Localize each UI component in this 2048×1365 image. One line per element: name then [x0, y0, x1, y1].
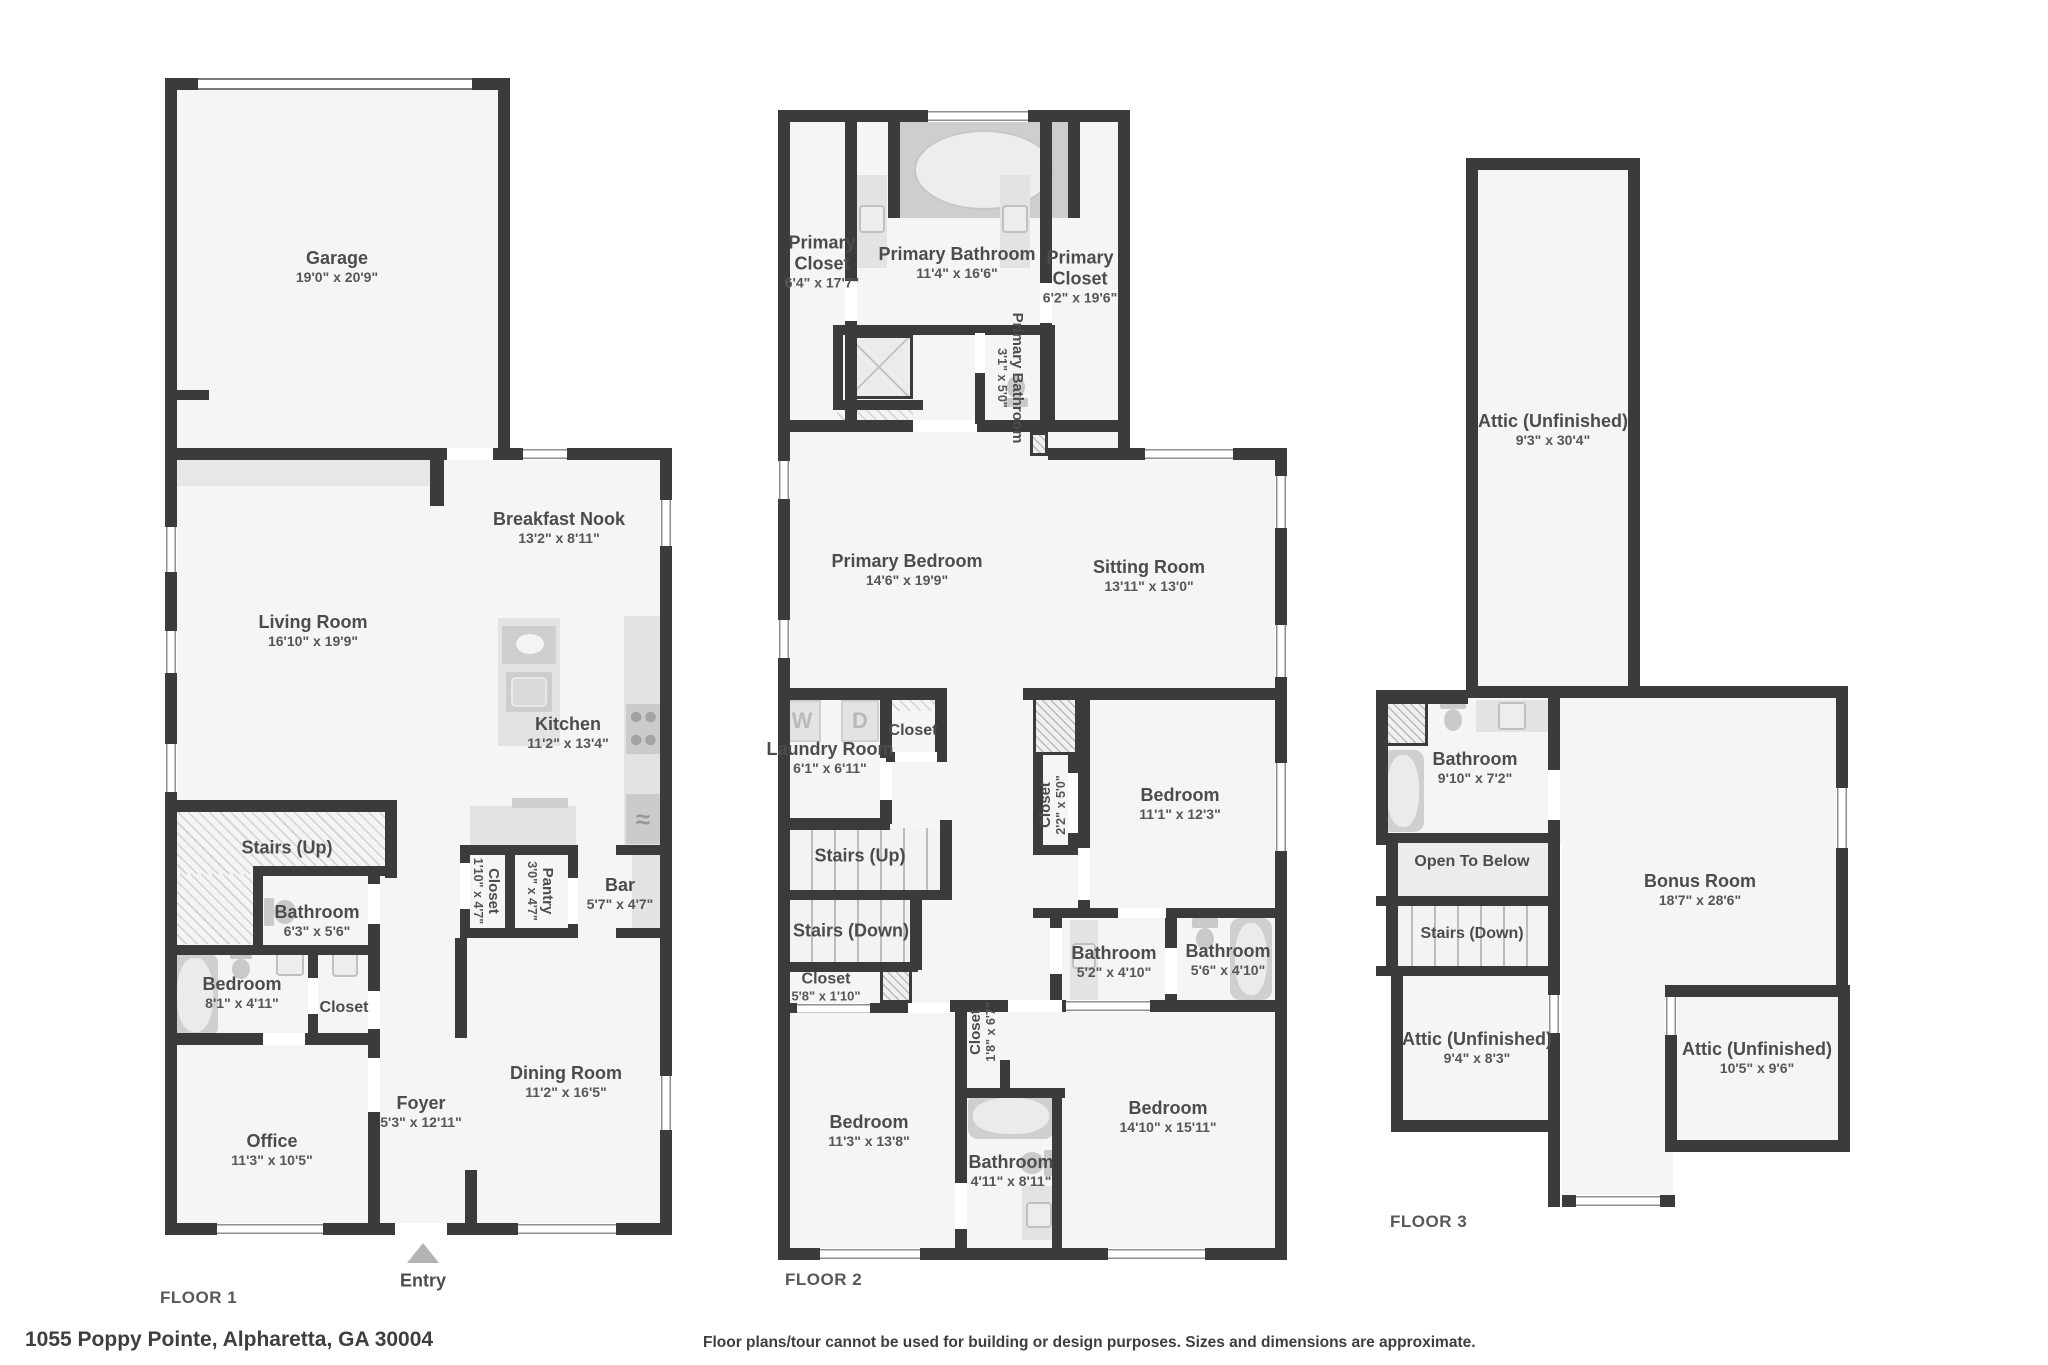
toilet-icon: [1192, 918, 1218, 928]
label-stairs-up: Stairs (Up): [814, 846, 905, 867]
room-label-bedroom: Bedroom 8'1" x 4'11": [202, 974, 281, 1012]
bar-back-counter: [470, 806, 576, 846]
room-name: Bedroom: [828, 1112, 909, 1133]
window: [1576, 1195, 1660, 1207]
room-name: Closet: [320, 999, 369, 1017]
wall-segment: [460, 928, 578, 938]
room-label-kitchen: Kitchen 11'2" x 13'4": [527, 714, 608, 752]
door-opening: [447, 448, 493, 460]
room-name: Bedroom: [1119, 1098, 1216, 1119]
floor2-caption: FLOOR 2: [785, 1270, 862, 1290]
room-dims: 9'10" x 7'2": [1433, 770, 1518, 787]
ti: [1387, 755, 1419, 827]
label-stairs-down-f3: Stairs (Down): [1420, 925, 1523, 943]
wall-segment: [165, 448, 672, 460]
room-dims: 1'10" x 4'7": [470, 858, 485, 924]
window: [165, 744, 177, 792]
wall-segment: [465, 1170, 477, 1235]
room-name: Sitting Room: [1093, 557, 1205, 578]
room-label-bathroom: Bathroom 6'3" x 5'6": [275, 902, 360, 940]
room-name: Stairs (Up): [814, 846, 905, 867]
garage-door: [198, 78, 472, 90]
room-name: Kitchen: [527, 714, 608, 735]
wall-segment: [1838, 985, 1850, 1152]
door-opening: [308, 978, 318, 1014]
room-name: Stairs (Down): [793, 921, 909, 942]
chase-hatch: [1030, 432, 1048, 456]
room-name: Laundry Room: [766, 739, 893, 760]
room-name: Bedroom: [202, 974, 281, 995]
room-label-primary-bathroom: Primary Bathroom 11'4" x 16'6": [878, 244, 1035, 282]
window: [1145, 448, 1233, 460]
room-dims: 10'5" x 9'6": [1682, 1060, 1832, 1077]
room-dims: 5'3" x 12'11": [380, 1114, 461, 1131]
door-opening: [975, 333, 985, 373]
wall-segment: [778, 688, 943, 700]
wall-segment: [1033, 845, 1078, 855]
wall-segment: [1068, 122, 1080, 218]
window: [1066, 1000, 1150, 1012]
room-dims: 5'7" x 4'7": [587, 896, 654, 913]
stairs-up-hatch: [177, 874, 253, 944]
room-dims: 11'2" x 16'5": [510, 1084, 622, 1101]
bathtub-icon: [1382, 750, 1424, 832]
wall-segment: [253, 866, 263, 955]
room-label-closet: Closet: [889, 722, 938, 740]
window: [778, 461, 790, 499]
room-dims: 14'10" x 15'11": [1119, 1119, 1216, 1136]
room-name: Stairs (Up): [241, 838, 332, 859]
door-opening: [460, 863, 470, 909]
room-name: Closet: [791, 971, 860, 989]
room-name: Primary Closet: [1020, 248, 1140, 290]
window: [1275, 476, 1287, 528]
room-name: Bonus Room: [1644, 871, 1756, 892]
wall-segment: [888, 122, 900, 218]
disclaimer-text: Floor plans/tour cannot be used for buil…: [703, 1334, 1476, 1352]
wall-segment: [498, 78, 510, 448]
floor1-caption: FLOOR 1: [160, 1288, 237, 1308]
room-dims: 6'3" x 5'6": [275, 923, 360, 940]
window: [1275, 625, 1287, 677]
door-opening: [955, 1183, 967, 1229]
room-label-bathroom-52: Bathroom 5'2" x 4'10": [1072, 943, 1157, 981]
stove-icon: [626, 704, 660, 754]
room-name: Garage: [296, 248, 378, 269]
window: [660, 1076, 672, 1130]
room-label-office: Office 11'3" x 10'5": [231, 1131, 312, 1169]
window: [1108, 1248, 1205, 1260]
wall-segment: [1376, 690, 1388, 845]
wall-segment: [1548, 690, 1560, 1207]
floor-plan-sheet: ≈ Garage: [0, 0, 2048, 1365]
room-dims: 3'0" x 4'7": [524, 861, 539, 921]
entry-text: Entry: [400, 1271, 446, 1292]
room-label-bedroom-113: Bedroom 11'3" x 13'8": [828, 1112, 909, 1150]
window: [820, 1248, 920, 1260]
room-name: Foyer: [380, 1093, 461, 1114]
room-name: Bathroom: [275, 902, 360, 923]
wall-segment: [1640, 686, 1848, 698]
ti: [973, 1098, 1049, 1134]
room-name: Closet: [485, 858, 502, 924]
entry-arrow-icon: [407, 1243, 439, 1263]
room-name: Living Room: [259, 612, 368, 633]
room-label-attic-left: Attic (Unfinished) 9'4" x 8'3": [1402, 1029, 1552, 1067]
room-name: Primary Closet: [767, 233, 877, 275]
room-dims: 5'8" x 1'10": [791, 989, 860, 1004]
wall-segment: [778, 432, 790, 1260]
wall-segment: [1386, 833, 1398, 976]
room-label-attic-right: Attic (Unfinished) 10'5" x 9'6": [1682, 1039, 1832, 1077]
room-name: Primary Bathroom: [878, 244, 1035, 265]
room-label-laundry: Laundry Room 6'1" x 6'11": [766, 739, 893, 777]
wall-segment: [1275, 448, 1287, 1260]
wall-segment: [833, 325, 843, 410]
room-label-bar: Bar 5'7" x 4'7": [587, 875, 654, 913]
room-label-closet-vertical: Closet 1'10" x 4'7": [470, 858, 502, 924]
room-name: Open To Below: [1414, 853, 1529, 871]
room-dims: 13'11" x 13'0": [1093, 578, 1205, 595]
door-opening: [1078, 848, 1090, 900]
room-name: Bathroom: [1433, 749, 1518, 770]
window: [1836, 788, 1848, 848]
room-name: Bar: [587, 875, 654, 896]
dryer-icon: D: [841, 700, 879, 742]
chase-hatch: [1033, 693, 1078, 755]
room-label-bedroom-1410: Bedroom 14'10" x 15'11": [1119, 1098, 1216, 1136]
room-dims: 5'2" x 4'10": [1072, 964, 1157, 981]
room-label-closet-18: Closet 1'8" x 6'7": [967, 1002, 999, 1062]
wall-segment: [1665, 1140, 1850, 1152]
wall-segment: [1000, 1060, 1010, 1090]
window: [660, 500, 672, 546]
bar-appliance: [512, 798, 568, 808]
cover: [1130, 420, 1287, 448]
room-dims: 16'10" x 19'9": [259, 633, 368, 650]
wall-segment: [165, 800, 397, 812]
room-label-garage: Garage 19'0" x 20'9": [296, 248, 378, 286]
room-label-breakfast-nook: Breakfast Nook 13'2" x 8'11": [493, 509, 625, 547]
sink-icon: [859, 205, 885, 233]
property-address: 1055 Poppy Pointe, Alpharetta, GA 30004: [25, 1328, 433, 1352]
wall-segment: [940, 820, 952, 900]
window: [1665, 997, 1677, 1035]
room-dims: 14'6" x 19'9": [831, 572, 982, 589]
room-name: Breakfast Nook: [493, 509, 625, 530]
room-name: Closet: [1037, 775, 1054, 835]
room-label-primary-closet-right: Primary Closet 6'2" x 19'6": [1020, 248, 1140, 307]
wall-segment: [1376, 833, 1558, 843]
room-dims: 6'1" x 6'11": [766, 760, 893, 777]
wall-segment: [833, 325, 978, 335]
room-name: Closet: [967, 1002, 984, 1062]
door-opening: [368, 884, 380, 924]
floor3-caption: FLOOR 3: [1390, 1212, 1467, 1232]
entry-label: Entry: [400, 1271, 446, 1292]
door-opening: [895, 752, 937, 762]
label-stairs-down: Stairs (Down): [793, 921, 909, 942]
room-label-foyer: Foyer 5'3" x 12'11": [380, 1093, 461, 1131]
wall-segment: [165, 390, 209, 400]
chase-hatch: [880, 968, 912, 1003]
wall-segment: [1466, 158, 1640, 170]
bonus-room-area: [1562, 698, 1848, 998]
room-label-sitting-room: Sitting Room 13'11" x 13'0": [1093, 557, 1205, 595]
room-dims: 11'4" x 16'6": [878, 265, 1035, 282]
window: [778, 620, 790, 658]
wall-segment: [1376, 896, 1558, 906]
room-label-bonus-room: Bonus Room 18'7" x 28'6": [1644, 871, 1756, 909]
room-label-primary-bedroom: Primary Bedroom 14'6" x 19'9": [831, 551, 982, 589]
door-opening: [1068, 773, 1078, 833]
room-dims: 5'6" x 4'10": [1186, 962, 1271, 979]
window: [165, 527, 177, 572]
room-label-bedroom-111: Bedroom 11'1" x 12'3": [1139, 785, 1220, 823]
room-dims: 18'7" x 28'6": [1644, 892, 1756, 909]
room-name: Attic (Unfinished): [1402, 1029, 1552, 1050]
room-label-pantry: Pantry 3'0" x 4'7": [524, 861, 556, 921]
room-name: Bathroom: [1072, 943, 1157, 964]
room-dims: 11'1" x 12'3": [1139, 806, 1220, 823]
wall-segment: [833, 400, 923, 410]
wall-segment: [385, 800, 397, 878]
room-dims: 9'4" x 8'3": [1402, 1050, 1552, 1067]
sink-icon: [1026, 1202, 1052, 1228]
room-name: Pantry: [539, 861, 556, 921]
room-dims: 4'11" x 8'11": [969, 1173, 1054, 1190]
room-name: Bathroom: [969, 1152, 1054, 1173]
wall-segment: [778, 818, 890, 830]
window: [518, 1223, 616, 1235]
door-opening: [1008, 1000, 1062, 1012]
room-name: Primary Bathroom: [1009, 313, 1026, 444]
window: [1275, 763, 1287, 851]
room-name: Bedroom: [1139, 785, 1220, 806]
wall-segment: [1052, 1088, 1062, 1260]
room-dims: 11'3" x 13'8": [828, 1133, 909, 1150]
door-opening: [913, 420, 977, 432]
room-name: Attic (Unfinished): [1682, 1039, 1832, 1060]
wall-segment: [910, 900, 922, 970]
wall-segment: [253, 866, 385, 876]
window: [217, 1223, 323, 1235]
room-label-primary-closet-left: Primary Closet 6'4" x 17'7": [767, 233, 877, 292]
door-opening: [1165, 948, 1177, 994]
wall-segment: [965, 1088, 1065, 1098]
room-dims: 11'2" x 13'4": [527, 735, 608, 752]
door-opening: [263, 1033, 305, 1045]
door-opening: [568, 878, 578, 924]
bathtub-icon: [914, 130, 1054, 210]
dishwasher-door: [511, 677, 547, 707]
room-label-bathroom-56: Bathroom 5'6" x 4'10": [1186, 941, 1271, 979]
room-label-bathroom-411: Bathroom 4'11" x 8'11": [969, 1152, 1054, 1190]
wall-segment: [165, 945, 378, 955]
bonus-room-stub: [1562, 995, 1673, 1207]
room-name: Attic (Unfinished): [1478, 411, 1628, 432]
door-opening: [1118, 908, 1166, 918]
room-name: Dining Room: [510, 1063, 622, 1084]
wall-segment: [455, 938, 467, 1038]
wall-segment: [165, 78, 177, 460]
wall-segment: [1466, 158, 1478, 698]
window: [797, 1003, 870, 1013]
room-dims: 3'1" x 5'0": [994, 313, 1009, 444]
window: [928, 110, 1028, 122]
wall-segment: [1045, 325, 1055, 424]
wall-segment: [505, 855, 515, 938]
wall-segment: [1628, 158, 1640, 698]
refrigerator-icon: ≈: [626, 794, 660, 844]
room-dims: 11'3" x 10'5": [231, 1152, 312, 1169]
label-open-to-below: Open To Below: [1414, 853, 1529, 871]
room-dims: 9'3" x 30'4": [1478, 432, 1628, 449]
soffit: [177, 460, 430, 486]
room-label-attic-top: Attic (Unfinished) 9'3" x 30'4": [1478, 411, 1628, 449]
room-name: Closet: [889, 722, 938, 740]
wall-segment: [430, 448, 444, 506]
room-label-dining-room: Dining Room 11'2" x 16'5": [510, 1063, 622, 1101]
sink-icon: [1002, 205, 1028, 233]
wall-segment: [778, 890, 952, 900]
room-label-closet: Closet: [320, 999, 369, 1017]
wall-segment: [460, 845, 578, 855]
door-opening: [1548, 770, 1560, 820]
room-label-primary-wc: Primary Bathroom 3'1" x 5'0": [994, 313, 1026, 444]
window: [523, 448, 567, 460]
sink-icon: [1498, 702, 1526, 730]
room-name: Bathroom: [1186, 941, 1271, 962]
door-opening: [368, 991, 380, 1029]
sink-basin-icon: [516, 634, 544, 654]
wall-segment: [1023, 688, 1287, 700]
wall-segment: [616, 845, 660, 855]
room-name: Office: [231, 1131, 312, 1152]
room-dims: 6'2" x 19'6": [1020, 290, 1140, 307]
entry-door-opening: [395, 1223, 447, 1235]
door-opening: [1050, 928, 1062, 974]
room-dims: 13'2" x 8'11": [493, 530, 625, 547]
room-name: Primary Bedroom: [831, 551, 982, 572]
room-label-closet-vertical: Closet 2'2" x 5'0": [1037, 775, 1069, 835]
door-opening: [368, 1058, 380, 1112]
wall-segment: [1376, 966, 1560, 976]
wall-segment: [1376, 690, 1468, 704]
room-dims: 2'2" x 5'0": [1054, 775, 1069, 835]
bathtub-icon: [968, 1093, 1054, 1139]
wall-segment: [616, 928, 660, 938]
room-label-bathroom-f3: Bathroom 9'10" x 7'2": [1433, 749, 1518, 787]
room-name: Stairs (Down): [1420, 925, 1523, 943]
room-label-living-room: Living Room 16'10" x 19'9": [259, 612, 368, 650]
toilet-icon: [1444, 709, 1462, 731]
room-dims: 19'0" x 20'9": [296, 269, 378, 286]
room-dims: 6'4" x 17'7": [767, 275, 877, 292]
window: [165, 631, 177, 673]
room-dims: 8'1" x 4'11": [202, 995, 281, 1012]
room-dims: 1'8" x 6'7": [984, 1002, 999, 1062]
window: [1548, 995, 1560, 1033]
label-stairs-up: Stairs (Up): [241, 838, 332, 859]
wall-segment: [1391, 1120, 1560, 1132]
room-label-closet-58: Closet 5'8" x 1'10": [791, 971, 860, 1004]
toilet-icon: [264, 898, 274, 926]
wall-segment: [1665, 985, 1850, 997]
